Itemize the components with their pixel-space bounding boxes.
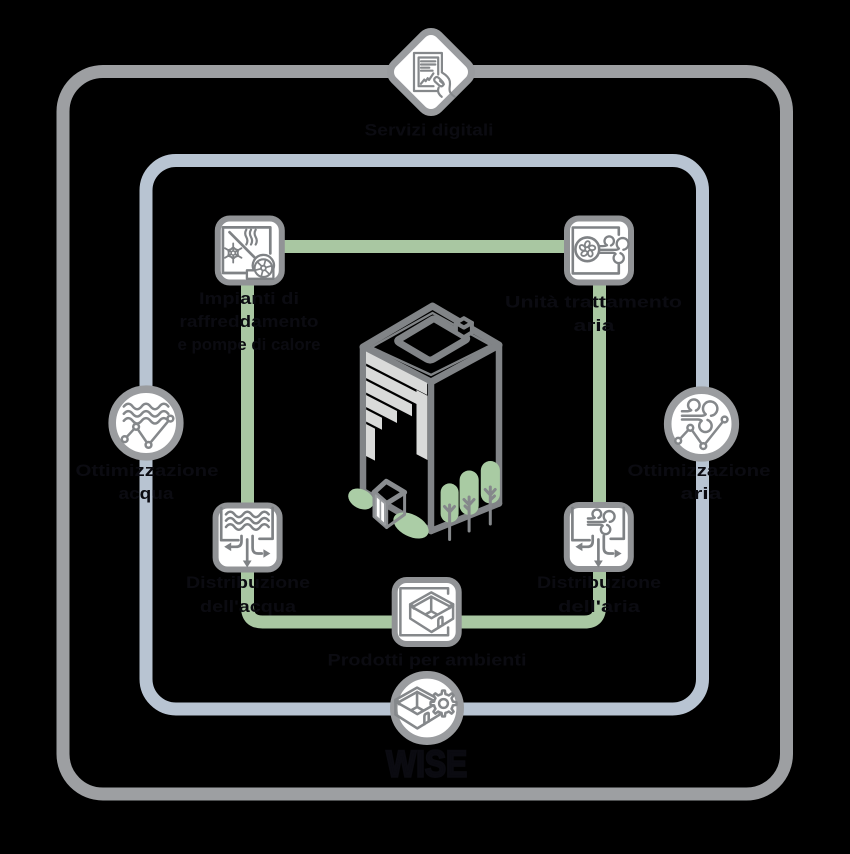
- svg-text:Prodotti per ambienti: Prodotti per ambienti: [328, 651, 527, 670]
- svg-text:acqua: acqua: [119, 484, 175, 503]
- svg-text:Ottimizzazione: Ottimizzazione: [76, 461, 219, 480]
- svg-text:WISE: WISE: [386, 743, 467, 785]
- svg-text:Impianti di: Impianti di: [199, 289, 299, 308]
- svg-text:dell'acqua: dell'acqua: [200, 597, 297, 616]
- svg-text:Distribuzione: Distribuzione: [186, 573, 310, 592]
- svg-text:raffreddamento: raffreddamento: [180, 312, 319, 331]
- svg-text:aria: aria: [681, 484, 723, 503]
- svg-text:dell'aria: dell'aria: [558, 597, 641, 616]
- svg-text:aria: aria: [574, 316, 616, 335]
- svg-text:e pompe di calore: e pompe di calore: [178, 335, 321, 354]
- svg-text:Unità trattamento: Unità trattamento: [505, 293, 682, 312]
- svg-text:Distribuzione: Distribuzione: [537, 573, 661, 592]
- svg-text:Ottimizzazione: Ottimizzazione: [628, 461, 771, 480]
- svg-text:Servizi digitali: Servizi digitali: [365, 121, 494, 140]
